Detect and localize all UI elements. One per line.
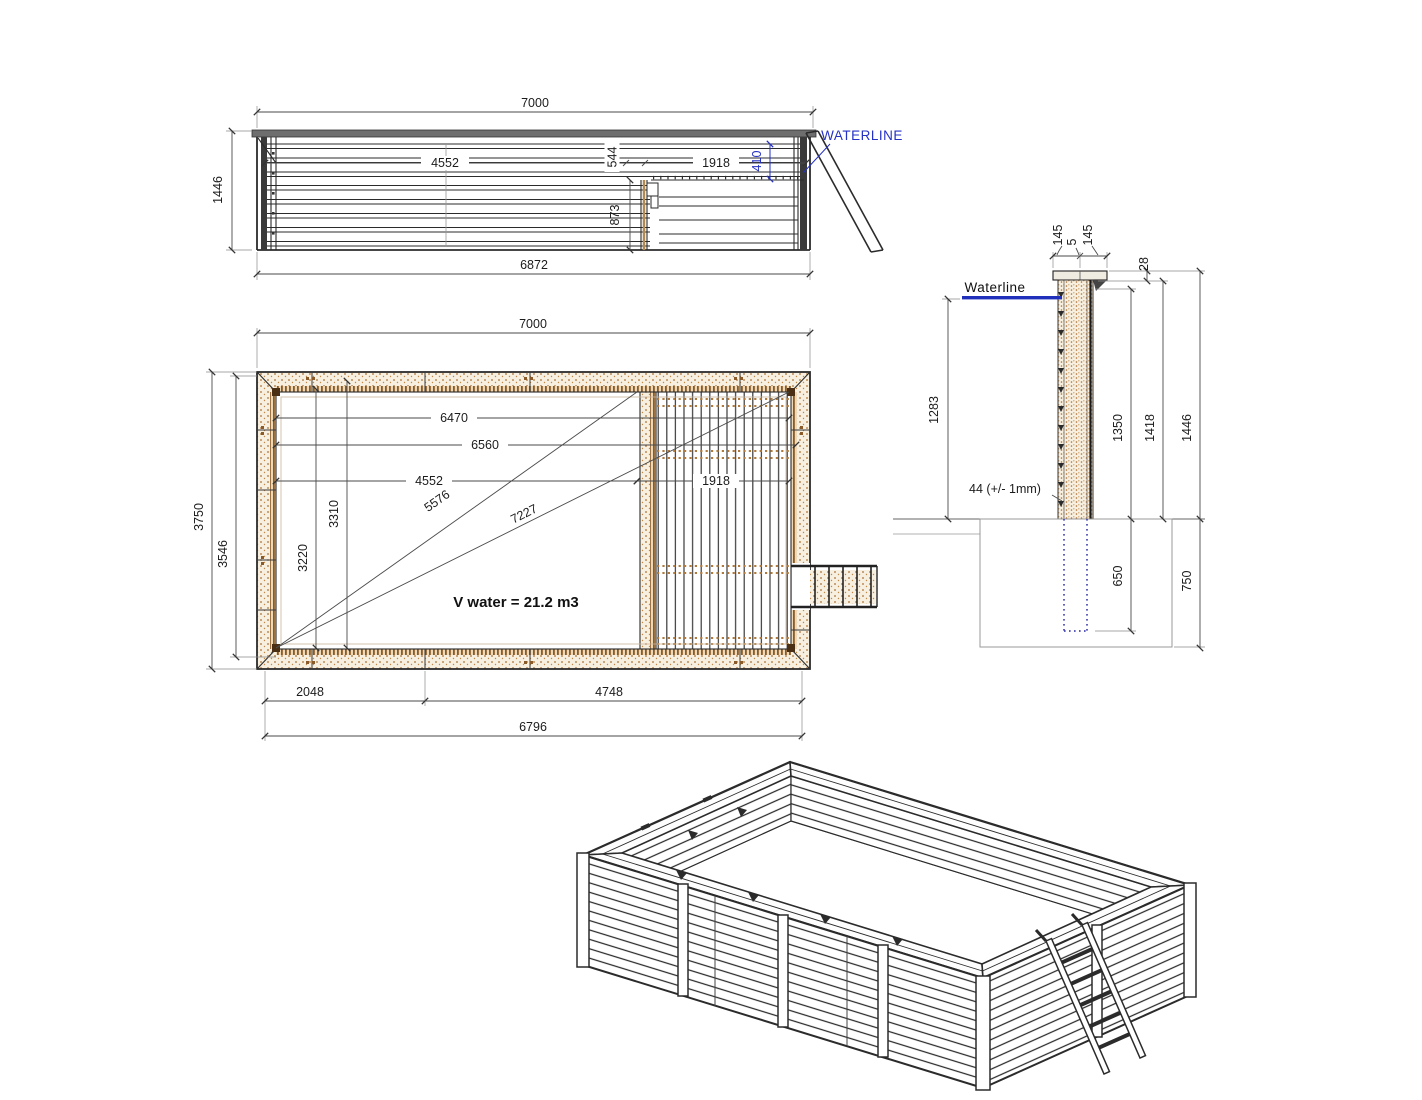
isometric-view [577, 762, 1196, 1090]
dim-overall-length: 7000 [521, 96, 549, 110]
dim-6560: 6560 [471, 438, 499, 452]
dim-2048: 2048 [296, 685, 324, 699]
technical-drawing-canvas: 7000 1446 6872 4552 544 1918 873 410 WAT… [0, 0, 1422, 1100]
dim-plan-inner-width: 3546 [216, 540, 230, 568]
waterline-marker [962, 296, 1062, 299]
dim-cap-right: 145 [1081, 225, 1095, 246]
dim-deck-length: 1918 [702, 474, 730, 488]
dim-750: 750 [1180, 571, 1194, 592]
dim-1418: 1418 [1143, 414, 1157, 442]
dim-cap-gap: 5 [1065, 238, 1079, 245]
side-ladder [806, 131, 883, 252]
dim-span-mid: 544 [606, 147, 620, 168]
side-dimensions: 7000 1446 6872 4552 544 1918 873 410 WAT… [211, 96, 903, 280]
dim-3220: 3220 [296, 544, 310, 572]
buried-post [1064, 519, 1087, 631]
plan-view: 7000 3750 3546 6470 6560 4552 1918 5576 [192, 317, 877, 741]
dim-1350: 1350 [1111, 414, 1125, 442]
pool-technical-drawing: 7000 1446 6872 4552 544 1918 873 410 WAT… [0, 0, 1422, 1100]
waterline-label: WATERLINE [821, 128, 903, 143]
dim-wall-thickness: 44 (+/- 1mm) [969, 482, 1041, 496]
dim-plan-base-length: 6796 [519, 720, 547, 734]
wall-section-view: 145 5 145 28 1283 1350 1418 1446 650 750… [893, 225, 1205, 648]
plan-structure [257, 372, 877, 669]
dim-6470: 6470 [440, 411, 468, 425]
dim-cap-left: 145 [1051, 225, 1065, 246]
plan-deck-zone [640, 392, 791, 649]
dim-plan-overall-length: 7000 [519, 317, 547, 331]
dim-plan-4552: 4552 [415, 474, 443, 488]
side-elevation-view: 7000 1446 6872 4552 544 1918 873 410 WAT… [211, 96, 903, 280]
dim-bench-height: 873 [608, 205, 622, 226]
dim-span-right: 1918 [702, 156, 730, 170]
water-volume-label: V water = 21.2 m3 [453, 594, 579, 611]
dim-cap-offset: 28 [1137, 257, 1151, 271]
dim-650: 650 [1111, 566, 1125, 587]
footing-outline [980, 519, 1172, 647]
section-structure [893, 271, 1205, 647]
section-waterline-label: Waterline [964, 280, 1025, 295]
side-bench-structure [641, 178, 804, 250]
dim-waterline-depth: 410 [750, 151, 764, 172]
side-pool-structure [252, 130, 883, 252]
dim-plan-overall-width: 3750 [192, 503, 206, 531]
dim-1283: 1283 [927, 396, 941, 424]
dim-3310: 3310 [327, 500, 341, 528]
dim-span-left: 4552 [431, 156, 459, 170]
dim-base-length: 6872 [520, 258, 548, 272]
plan-ladder [791, 563, 877, 610]
dim-1446: 1446 [1180, 414, 1194, 442]
dim-4748: 4748 [595, 685, 623, 699]
dim-height: 1446 [211, 176, 225, 204]
